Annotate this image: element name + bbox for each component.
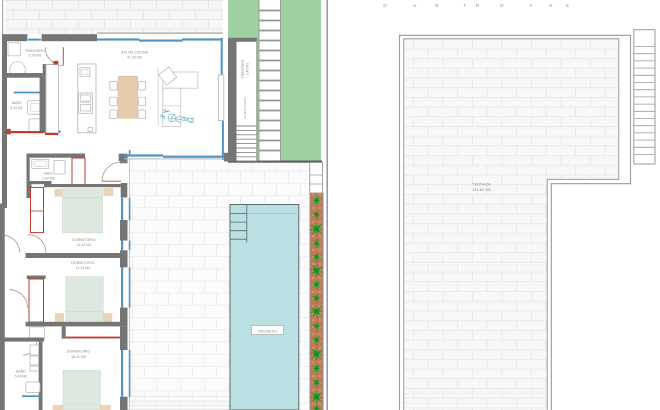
svg-text:DORMITORIO: DORMITORIO [72, 238, 95, 242]
svg-text:11.31 M2: 11.31 M2 [76, 266, 91, 270]
svg-text:S: S [566, 3, 569, 8]
svg-text:PISCINA 5x3: PISCINA 5x3 [258, 329, 278, 333]
svg-text:SALON COCINA: SALON COCINA [121, 50, 149, 54]
svg-text:U: U [413, 3, 416, 8]
svg-text:3.78 M2: 3.78 M2 [29, 54, 42, 58]
svg-text:DORMITORIO: DORMITORIO [71, 261, 94, 265]
svg-text:DORMITORIO: DORMITORIO [67, 350, 90, 354]
svg-text:134.62 M2: 134.62 M2 [472, 187, 492, 192]
svg-text:5.48 M2: 5.48 M2 [15, 374, 27, 378]
svg-text:B: B [435, 3, 438, 8]
svg-text:TRASTERO: TRASTERO [241, 59, 245, 78]
svg-text:16.11 M2: 16.11 M2 [71, 355, 86, 359]
svg-text:2.64 M2: 2.64 M2 [42, 176, 54, 180]
svg-text:3.33 M2: 3.33 M2 [10, 106, 22, 110]
svg-text:ASEO: ASEO [44, 172, 54, 176]
svg-text:O: O [383, 3, 387, 8]
svg-text:O: O [500, 3, 504, 8]
svg-text:BAÑO: BAÑO [12, 100, 22, 105]
svg-text:TRASTERO: TRASTERO [25, 49, 45, 53]
svg-text:41.33 M2: 41.33 M2 [127, 56, 142, 60]
svg-text:TERRAZA: TERRAZA [472, 181, 491, 186]
svg-text:2.45 M2: 2.45 M2 [246, 63, 250, 75]
svg-text:11.01 M2: 11.01 M2 [77, 243, 92, 247]
svg-text:ACCESO COCINA: ACCESO COCINA [243, 97, 247, 119]
svg-text:T: T [463, 3, 466, 8]
svg-text:BAÑO: BAÑO [16, 369, 26, 374]
svg-text:E: E [549, 3, 552, 8]
svg-text:A: A [529, 3, 532, 8]
